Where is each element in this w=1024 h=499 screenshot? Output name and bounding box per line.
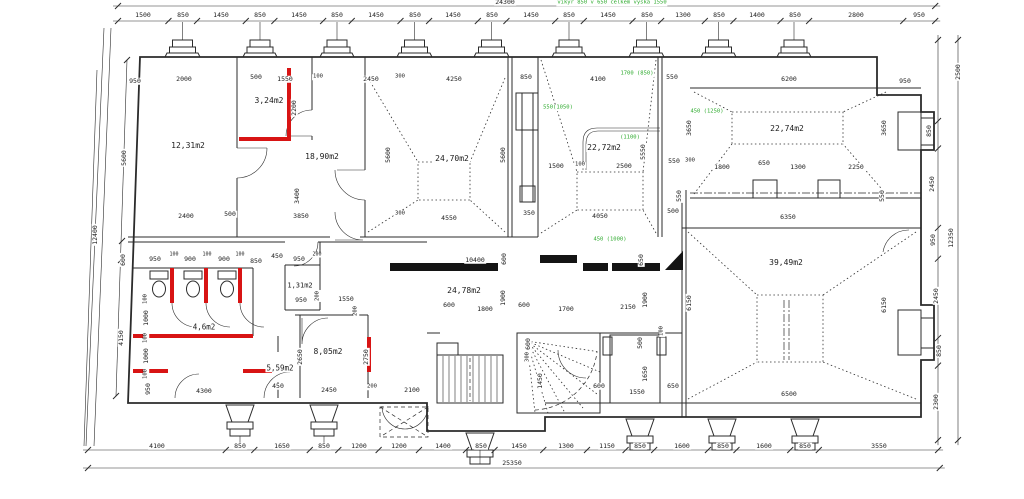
dormer-cap xyxy=(482,40,502,47)
floor-plan-canvas: 24300vikyr 850 v 650 celkem vyska 155015… xyxy=(0,0,1024,499)
floor-plan-drawing xyxy=(0,0,1024,499)
dormer-cap xyxy=(173,40,193,47)
dormer-cap xyxy=(709,40,729,47)
dormer-body xyxy=(170,47,196,53)
dormer-cap xyxy=(559,40,579,47)
dormer-step xyxy=(230,429,250,436)
roof-projection-lines xyxy=(368,60,916,399)
staircase xyxy=(437,333,666,413)
dormer-body xyxy=(708,419,736,436)
red-new-walls xyxy=(133,68,369,372)
section-marker-triangle xyxy=(665,251,683,270)
dormer-red-highlight xyxy=(226,405,254,422)
dormer-cap xyxy=(784,40,804,47)
interior-walls xyxy=(128,57,934,417)
dormer-body xyxy=(324,47,350,53)
dormer-cap xyxy=(405,40,425,47)
toilet-icon xyxy=(150,271,168,297)
dormer-step xyxy=(792,436,818,443)
dormer-step xyxy=(709,436,735,443)
dormer-body xyxy=(626,419,654,436)
door-swings xyxy=(172,110,909,437)
dormer-cap xyxy=(637,40,657,47)
dormer-step xyxy=(627,436,653,443)
dormer-cap xyxy=(327,40,347,47)
dormer-body xyxy=(466,433,494,450)
dormer-body xyxy=(556,47,582,53)
dormer-body xyxy=(634,47,660,53)
bearing-wall-band xyxy=(390,251,683,271)
dormer-body xyxy=(310,405,338,422)
dormer-body xyxy=(781,47,807,53)
dormer-body xyxy=(706,47,732,53)
toilet-icon xyxy=(218,271,236,297)
dormer-step xyxy=(227,422,253,429)
dormer-cap xyxy=(250,40,270,47)
dormer-step xyxy=(311,422,337,429)
dormer-body xyxy=(791,419,819,436)
dormer-step xyxy=(314,429,334,436)
dormer-body xyxy=(479,47,505,53)
toilet-icon xyxy=(184,271,202,297)
site-boundary-lines xyxy=(84,28,130,446)
toilet-fixtures xyxy=(150,271,236,297)
dormer-body xyxy=(247,47,273,53)
dormer-body xyxy=(402,47,428,53)
handrail-curve xyxy=(583,128,660,170)
